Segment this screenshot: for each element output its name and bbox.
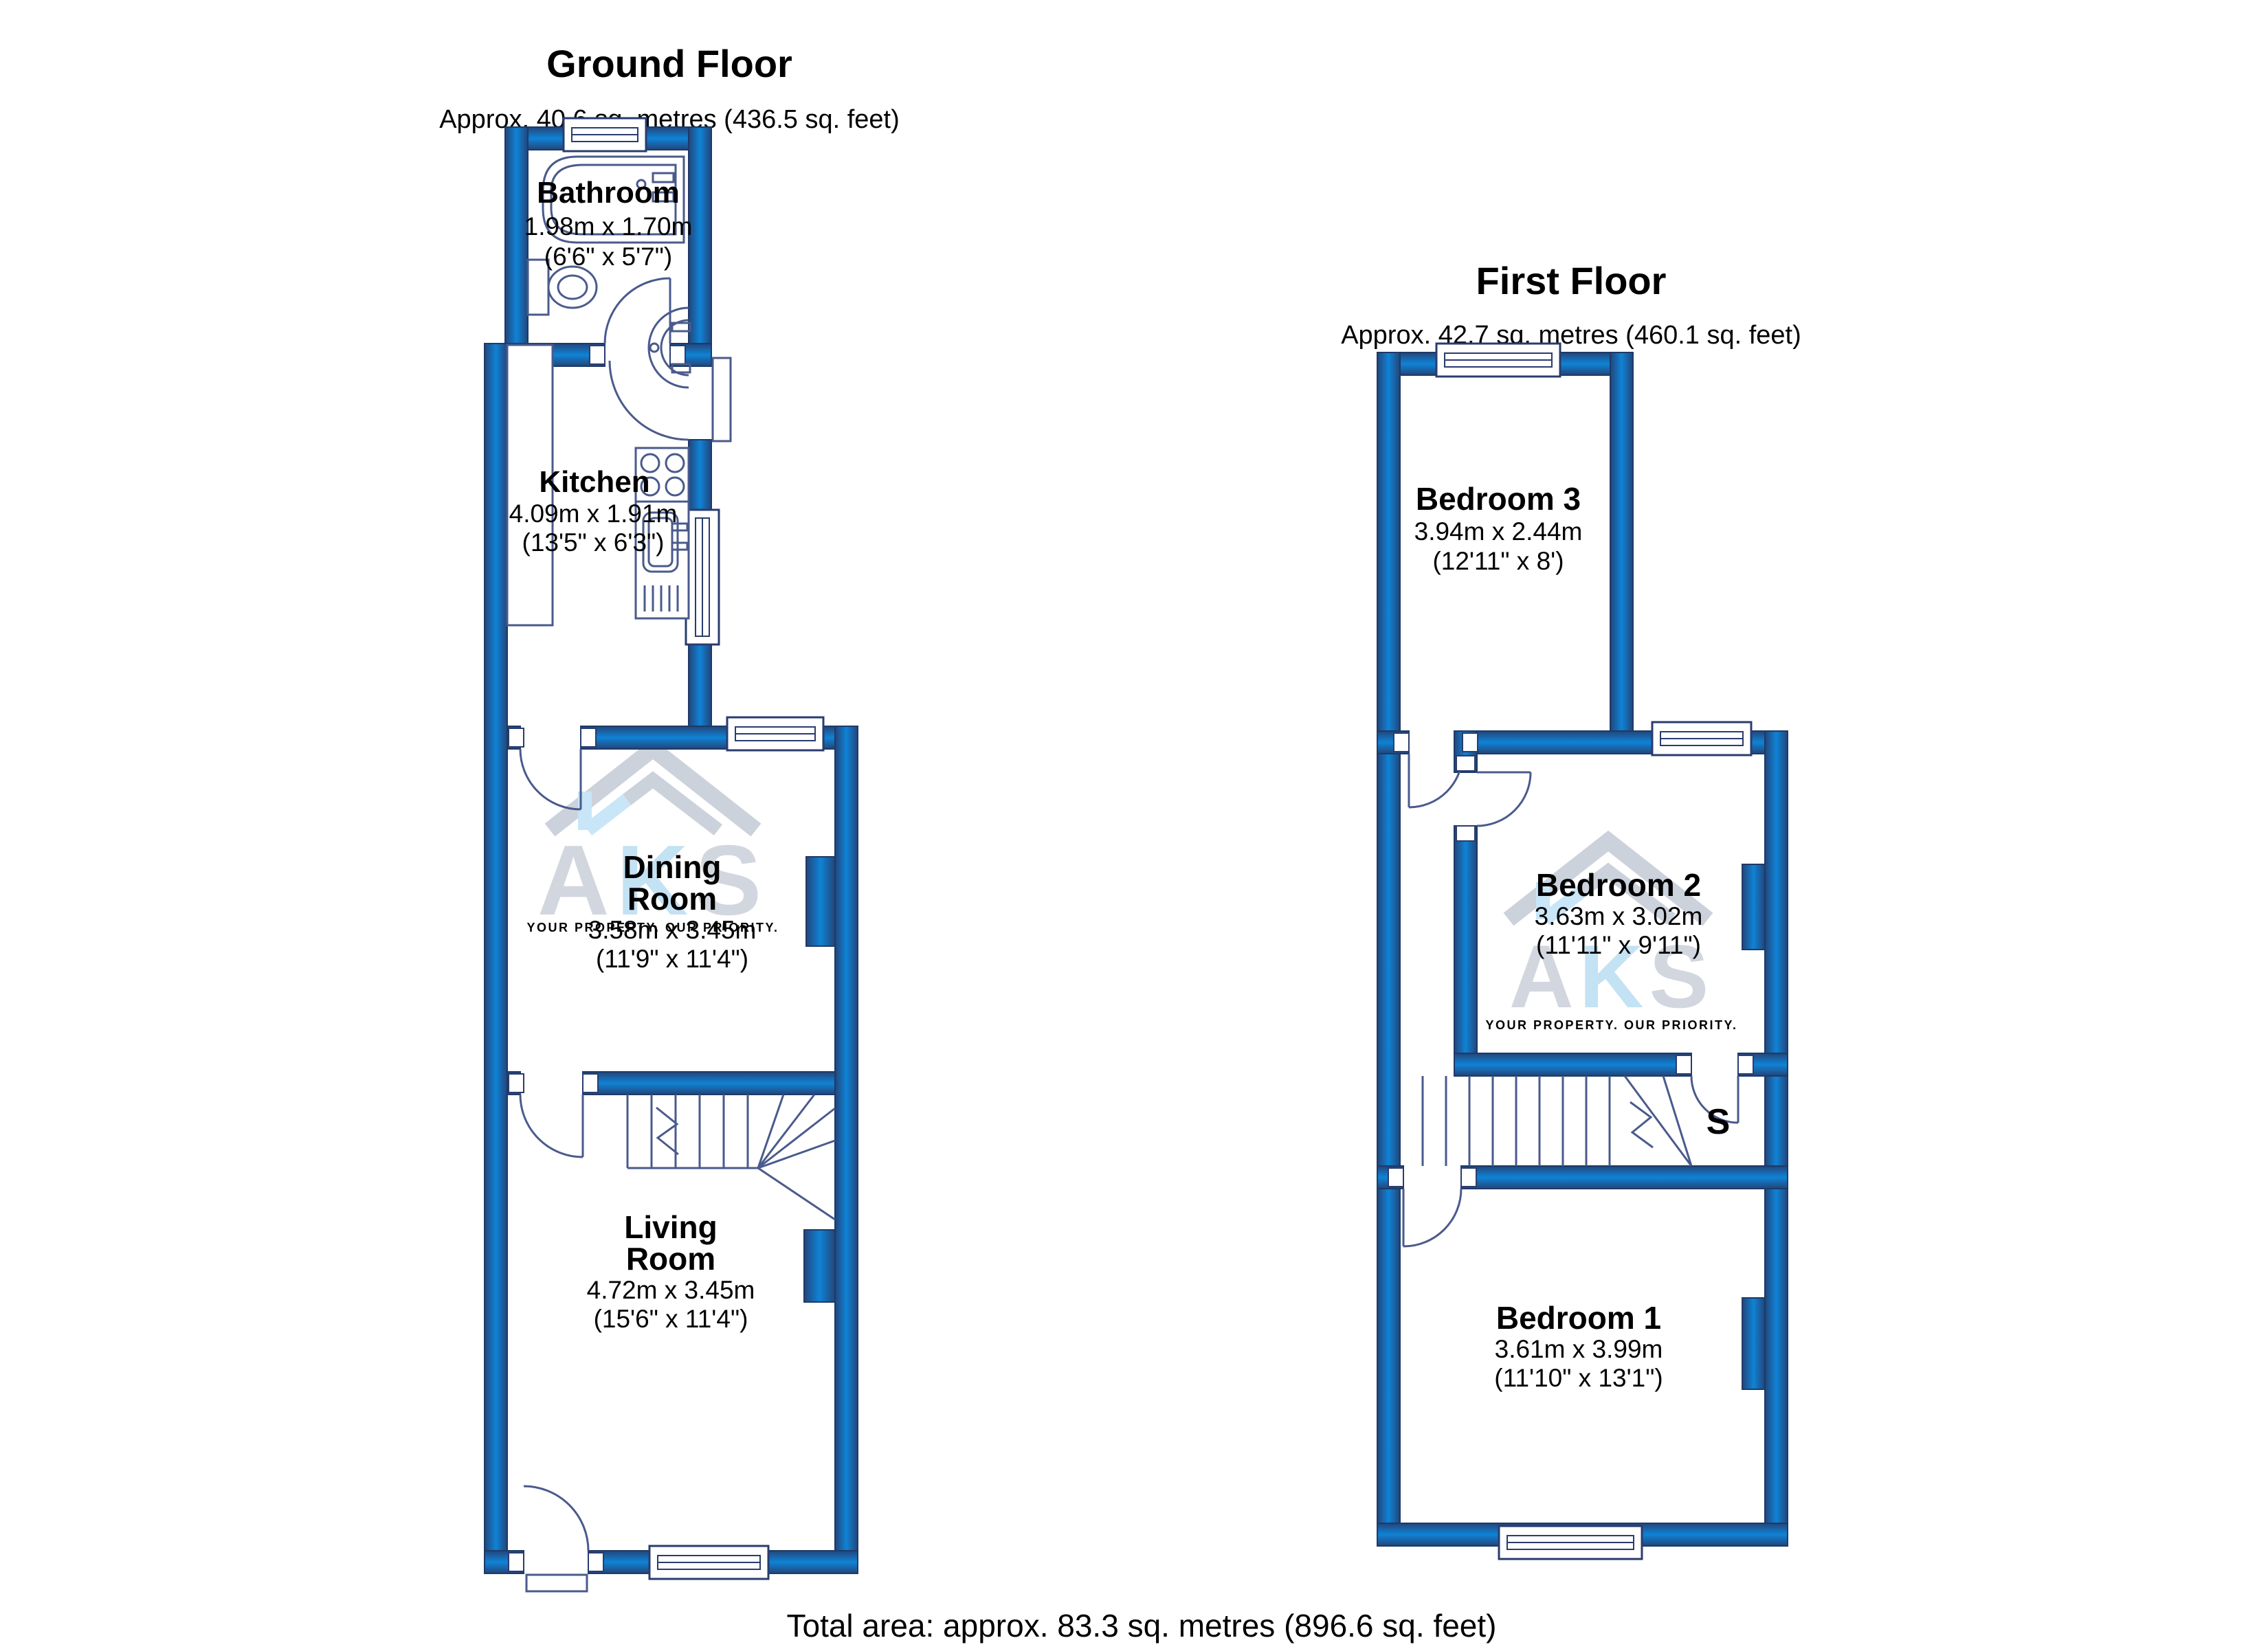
right-wall-lower [835,726,858,1573]
staircase-ground [627,1095,835,1220]
bedroom3-right-wall [1610,352,1633,754]
bedroom2-dim-imperial: (11'11" x 9'11") [1536,931,1701,959]
kitchen-label: Kitchen [539,465,649,499]
bedroom2-bottom-wall [1454,1053,1691,1076]
watermark-slogan: YOUR PROPERTY. OUR PRIORITY. [1485,1018,1737,1032]
total-area-label: Total area: approx. 83.3 sq. metres (896… [786,1608,1496,1644]
left-wall [485,344,507,1573]
first-floor-plan: First Floor Approx. 42.7 sq. metres (460… [1341,259,1801,1559]
first-floor-title: First Floor [1476,259,1667,302]
first-left-wall [1377,352,1400,1546]
living-room-label-line1: Living [624,1209,717,1245]
bathroom-dim-metric: 1.98m x 1.70m [524,212,693,240]
ground-floor-title: Ground Floor [546,42,792,85]
staircase-first [1423,1076,1691,1166]
bathroom-door-icon [590,278,685,364]
kitchen-exterior-door-icon [610,358,731,441]
bedroom1-window-icon [1499,1526,1642,1559]
first-floor-subtitle: Approx. 42.7 sq. metres (460.1 sq. feet) [1341,321,1801,350]
kitchen-dim-metric: 4.09m x 1.91m [509,500,678,528]
living-room-label-line2: Room [626,1241,715,1277]
living-dim-imperial: (15'6" x 11'4") [594,1305,748,1333]
living-door-icon [509,1074,598,1157]
bedroom3-dim-metric: 3.94m x 2.44m [1414,517,1583,546]
bedroom2-door-icon [1456,756,1531,841]
floorplan-canvas: Ground Floor Approx. 40.6 sq. metres (43… [0,0,2268,1649]
bathroom-window-icon [564,118,646,151]
front-door-icon [509,1486,603,1591]
dining-chimney-breast [806,857,835,946]
dining-room-label-line1: Dining [623,849,721,885]
bedroom3-dim-imperial: (12'11" x 8') [1432,547,1564,575]
floorplan-page: Ground Floor Approx. 40.6 sq. metres (43… [0,0,2268,1649]
bedroom1-label: Bedroom 1 [1496,1300,1661,1336]
bedroom1-dim-imperial: (11'10" x 13'1") [1494,1364,1663,1392]
ground-floor-plan: Ground Floor Approx. 40.6 sq. metres (43… [439,42,900,1591]
bedroom2-left-wall-lower [1454,826,1477,1076]
bedroom3-label: Bedroom 3 [1416,481,1581,517]
living-chimney-breast [804,1230,835,1302]
landing-window-icon [1652,722,1751,755]
dining-room-label-line2: Room [627,881,717,917]
storage-label: S [1706,1102,1731,1142]
front-wall-right [768,1551,858,1573]
bedroom2-dim-metric: 3.63m x 3.02m [1535,902,1703,930]
bedroom3-window-icon [1436,344,1560,377]
dining-dim-metric: 3.58m x 3.45m [588,916,757,944]
bedroom2-chimney-breast [1742,864,1765,950]
dining-window-icon [727,717,823,750]
bedroom1-top-wall [1461,1166,1788,1189]
bathroom-label: Bathroom [537,176,680,210]
kitchen-dim-imperial: (13'5" x 6'3") [522,528,665,557]
bathroom-dim-imperial: (6'6" x 5'7") [544,243,672,271]
bathroom-left-wall [505,127,528,366]
first-right-wall [1765,731,1788,1546]
bedroom1-dim-metric: 3.61m x 3.99m [1495,1335,1663,1363]
right-wall-upper [689,127,711,361]
living-dim-metric: 4.72m x 3.45m [587,1276,755,1304]
dining-dim-imperial: (11'9" x 11'4") [596,945,748,973]
kitchen-window-icon [686,510,719,644]
bedroom1-door-icon [1388,1168,1476,1246]
living-window-icon [649,1546,768,1579]
bedroom2-label: Bedroom 2 [1536,867,1701,903]
living-top-wall [583,1072,835,1095]
bedroom1-chimney-breast [1742,1298,1765,1389]
right-wall-kitchen-mid [689,440,711,512]
